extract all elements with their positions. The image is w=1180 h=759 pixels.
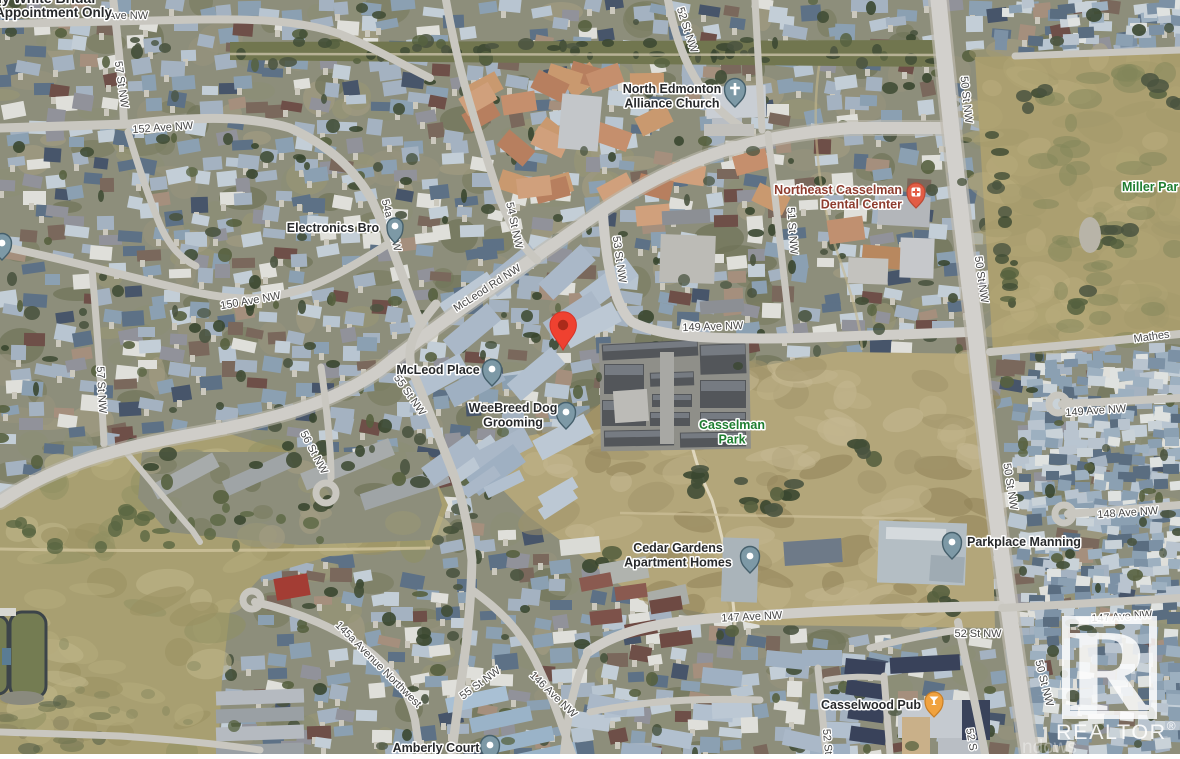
svg-text:McLeod Place: McLeod Place xyxy=(396,363,479,377)
svg-text:R: R xyxy=(1067,605,1154,736)
svg-text:Northeast Casselman: Northeast Casselman xyxy=(774,183,902,197)
svg-text:Appointment Only: Appointment Only xyxy=(0,5,112,20)
svg-text:Casselman: Casselman xyxy=(699,418,765,432)
svg-text:Grooming: Grooming xyxy=(483,416,543,430)
svg-text:Casselwood Pub: Casselwood Pub xyxy=(821,698,921,712)
svg-text:Miller Par: Miller Par xyxy=(1122,180,1178,194)
svg-text:Apartment Homes: Apartment Homes xyxy=(624,556,732,570)
svg-text:ndows: ndows xyxy=(1022,737,1077,754)
svg-text:Amberly Court: Amberly Court xyxy=(393,741,481,754)
svg-text:Electronics Bro: Electronics Bro xyxy=(287,221,380,235)
svg-text:52 St NW: 52 St NW xyxy=(954,628,1002,640)
svg-text:52 St: 52 St xyxy=(820,728,834,754)
svg-text:Dental Center: Dental Center xyxy=(821,198,902,212)
svg-text:Cedar Gardens: Cedar Gardens xyxy=(633,541,723,555)
svg-text:Alliance Church: Alliance Church xyxy=(624,97,719,111)
svg-text:Ave NW: Ave NW xyxy=(108,10,149,22)
svg-text:149 Ave NW: 149 Ave NW xyxy=(682,320,744,334)
svg-text:57 St NW: 57 St NW xyxy=(94,366,108,414)
svg-text:Parkplace Manning: Parkplace Manning xyxy=(967,535,1081,549)
svg-text:North Edmonton: North Edmonton xyxy=(623,82,722,96)
svg-text:WeeBreed Dog: WeeBreed Dog xyxy=(469,401,558,415)
svg-text:Park: Park xyxy=(718,433,745,447)
